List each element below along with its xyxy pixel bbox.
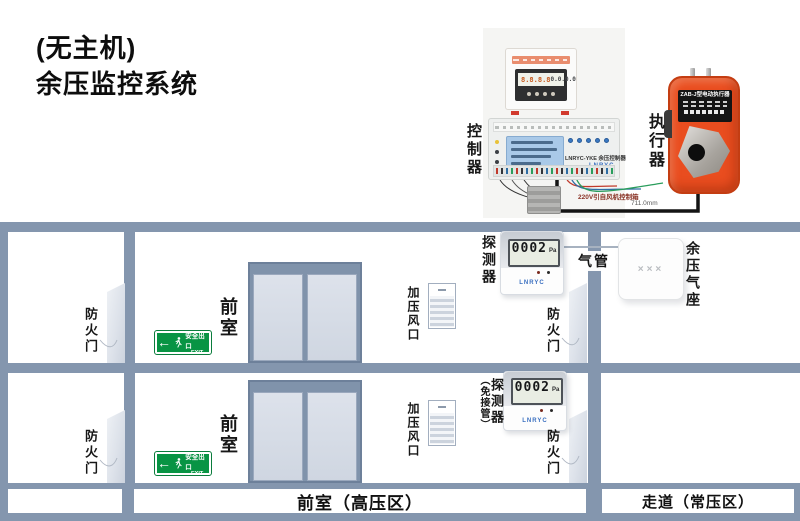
wire-length-note: 711.0mm (631, 200, 658, 207)
detector-indicator (550, 409, 553, 412)
floor-slab-middle (0, 363, 800, 373)
controller-display-bezel: 8.8.8.8 0.0.0.0 (515, 69, 567, 101)
pressurized-vent-lower (428, 400, 456, 446)
detector-brand-logo: LNRYC (501, 280, 563, 286)
actuator-model-label: ZAB-J型电动执行器 (680, 92, 730, 99)
exit-sign-subtext: EXIT (191, 350, 203, 356)
diagram-canvas: (无主机) 余压监控系统 前室（高压区） 走道（常压区） ← (0, 0, 800, 521)
elevator-upper (248, 262, 362, 363)
detector-lower: 0002 Pa LNRYC (503, 371, 567, 431)
controller-header-strip (512, 56, 570, 64)
vent-label-upper: 加压风口 (407, 286, 419, 342)
page-title: 余压监控系统 (36, 64, 198, 101)
exit-sign-text: 安全出口 (185, 330, 209, 350)
mount-clip (511, 111, 519, 115)
detector-lower-label: 探测器 (490, 378, 503, 426)
pressure-unit: Pa (552, 387, 559, 393)
led-indicator (495, 140, 499, 144)
pressure-reading: 0002 (512, 241, 547, 256)
actuator-body: ZAB-J型电动执行器 (668, 76, 740, 194)
exit-sign-subtext: EXIT (191, 471, 203, 477)
terminal-strip-bottom (493, 165, 615, 177)
pressure-reading: 0002 (515, 380, 550, 395)
lcd-text-row (511, 148, 557, 151)
air-seat-box: ××× (618, 238, 684, 300)
air-pipe-label: 气管 (577, 251, 611, 271)
fire-door-label-lower-right: 防火门 (546, 429, 559, 477)
wire-source-note: 220V引自风机控制箱 (578, 191, 639, 201)
fire-door-upper-right (569, 283, 587, 363)
led-indicator (495, 160, 499, 164)
elevator-door-panel (307, 392, 357, 481)
running-man-icon (174, 336, 182, 349)
exit-arrow-icon: ← (157, 456, 171, 470)
terminal-strip-top (493, 122, 615, 132)
controller-button (595, 138, 600, 143)
controller-display-unit: 8.8.8.8 0.0.0.0 (505, 48, 577, 110)
controller-button (604, 138, 609, 143)
controller-label: 控制器 (466, 123, 481, 177)
mount-clip (561, 111, 569, 115)
detector-upper: 0002 Pa LNRYC (500, 231, 564, 295)
title-prefix: (无主机) (36, 28, 136, 65)
detector-indicator (540, 409, 543, 412)
pressure-unit: Pa (549, 248, 556, 254)
lcd-text-row (511, 141, 553, 144)
elevator-door-panel (307, 274, 357, 361)
wall-left (0, 222, 8, 521)
detector-indicator (537, 271, 540, 274)
zone-label-corridor: 走道（常压区） (602, 489, 794, 513)
actuator-label: 执行器 (646, 113, 662, 170)
exit-sign-lower: ← 安全出口 EXIT (155, 452, 211, 475)
fire-door-upper-left (107, 283, 125, 363)
segment-display-left: 8.8.8.8 (521, 76, 551, 84)
controller-button (568, 138, 573, 143)
fire-door-label-upper-left: 防火门 (84, 307, 97, 355)
zone-label-front-room: 前室（高压区） (134, 489, 586, 513)
pressurized-vent-upper (428, 283, 456, 329)
elevator-door-panel (253, 392, 303, 481)
controller-model-label: LNRYC-YKE 余压控制器 (565, 154, 626, 162)
actuator-side-tab (664, 110, 672, 138)
fire-door-label-lower-left: 防火门 (84, 429, 97, 477)
led-indicator (495, 150, 499, 154)
fire-door-label-upper-right: 防火门 (546, 307, 559, 355)
exit-sign-upper: ← 安全出口 EXIT (155, 331, 211, 354)
zone-box-blank (8, 489, 122, 513)
exit-arrow-icon: ← (157, 335, 171, 349)
detector-lcd: 0002 Pa (508, 239, 560, 267)
fire-door-lower-left (107, 410, 125, 483)
actuator-shaft-hole (688, 144, 705, 161)
elevator-door-panel (253, 274, 303, 361)
air-seat-label: 余压气座 (686, 241, 700, 309)
vent-louvers (430, 296, 454, 327)
vent-louvers (430, 413, 454, 444)
controller-display-screen: 8.8.8.8 0.0.0.0 (518, 73, 564, 86)
vent-latch (438, 406, 446, 408)
controller-button (586, 138, 591, 143)
floor-slab-top (0, 222, 800, 232)
detector-lcd: 0002 Pa (511, 378, 563, 405)
controller-button-row (521, 91, 561, 97)
exit-sign-text: 安全出口 (185, 451, 209, 471)
elevator-lower (248, 380, 362, 483)
nameplate-terminal-row (684, 110, 726, 114)
detector-upper-label: 探测器 (482, 235, 496, 286)
detector-lower-sublabel: （免接管） (478, 375, 488, 430)
room-label-lower: 前室 (219, 414, 237, 456)
vent-latch (438, 289, 446, 291)
controller-button (577, 138, 582, 143)
air-seat-marking: ××× (638, 264, 665, 275)
segment-display-right: 0.0.0.0 (551, 76, 576, 83)
nameplate-text-line (683, 105, 727, 107)
terminal-block (527, 186, 561, 214)
fire-door-lower-right (569, 410, 587, 483)
running-man-icon (174, 457, 182, 470)
actuator-nameplate: ZAB-J型电动执行器 (678, 90, 732, 122)
room-label-upper: 前室 (219, 297, 237, 339)
vent-label-lower: 加压风口 (407, 402, 419, 458)
detector-brand-logo: LNRYC (504, 418, 566, 424)
nameplate-text-line (683, 101, 727, 103)
wall-inner-left (124, 222, 135, 483)
lcd-text-row (511, 155, 551, 158)
detector-indicator (547, 271, 550, 274)
controller-main-unit: LNRYC-YKE 余压控制器 LNRYC (488, 118, 620, 180)
